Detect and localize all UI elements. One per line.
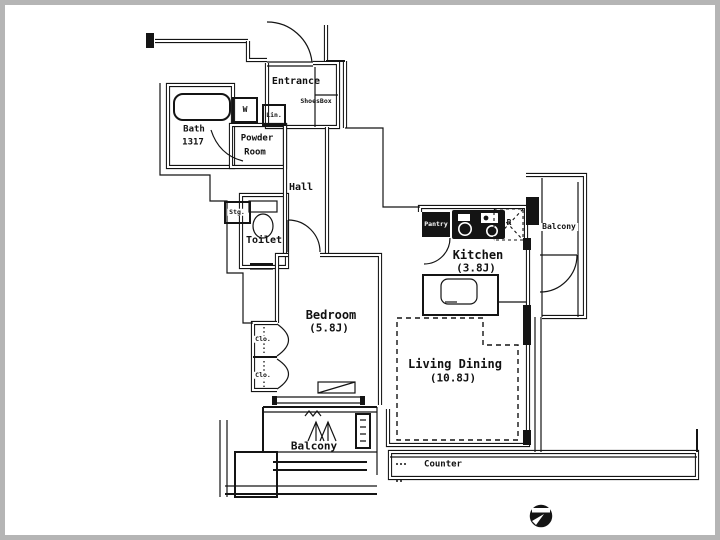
room-label-entrance: Entrance [272,77,320,87]
room-label-fridge: R [507,219,512,227]
room-label-counter: Counter [424,461,462,470]
balcony-door-arc [540,255,577,292]
toilet-icon [249,201,277,238]
bathtub-icon [174,94,230,120]
hall-bedroom-door-arc [288,220,320,252]
closet-door-arc [277,324,289,356]
right-balcony [540,178,578,317]
counter-band [390,317,697,482]
stove-icon [452,210,505,239]
closet-door-arc [277,359,289,389]
floor-plan: Entrance ShoesBox Bath 1317 W Lin. Powde… [0,0,720,540]
closets [253,324,289,389]
laundry-pole-icon [305,411,336,441]
room-label-powder-2: Room [244,149,266,158]
room-label-hall: Hall [289,183,313,193]
floor-plan-canvas [5,5,715,535]
kitchen-island [423,275,526,315]
room-label-pantry: Pantry [424,221,447,228]
room-label-storage: Stg. [227,209,247,216]
room-label-balcony-right: Balcony [540,223,578,231]
room-label-bedroom: Bedroom [306,309,357,321]
room-label-shoesbox: ShoesBox [300,98,331,105]
room-label-closet-upper: Clo. [253,336,273,343]
room-label-kitchen-size: (3.8J) [456,263,496,274]
compass-icon [531,506,552,527]
room-label-linen: Lin. [266,112,282,119]
room-label-powder-1: Powder [241,135,274,144]
room-label-toilet: Toilet [246,236,282,246]
room-label-kitchen: Kitchen [453,249,504,261]
room-label-washer: W [243,106,248,114]
room-label-balcony-bottom: Balcony [291,441,337,452]
meter-box [356,414,370,448]
room-label-living-dining-size: (10.8J) [430,373,476,384]
room-label-bath: Bath [183,126,205,135]
room-label-bath-size: 1317 [182,139,204,148]
bath-door-arc [211,130,243,161]
room-label-bedroom-size: (5.8J) [309,323,349,334]
walls [146,25,697,478]
pantry-door-arc [424,238,450,264]
bedroom-window [272,382,365,405]
entrance-door-arc [267,22,312,62]
room-label-living-dining: Living Dining [408,358,502,370]
room-label-closet-lower: Clo. [253,372,273,379]
